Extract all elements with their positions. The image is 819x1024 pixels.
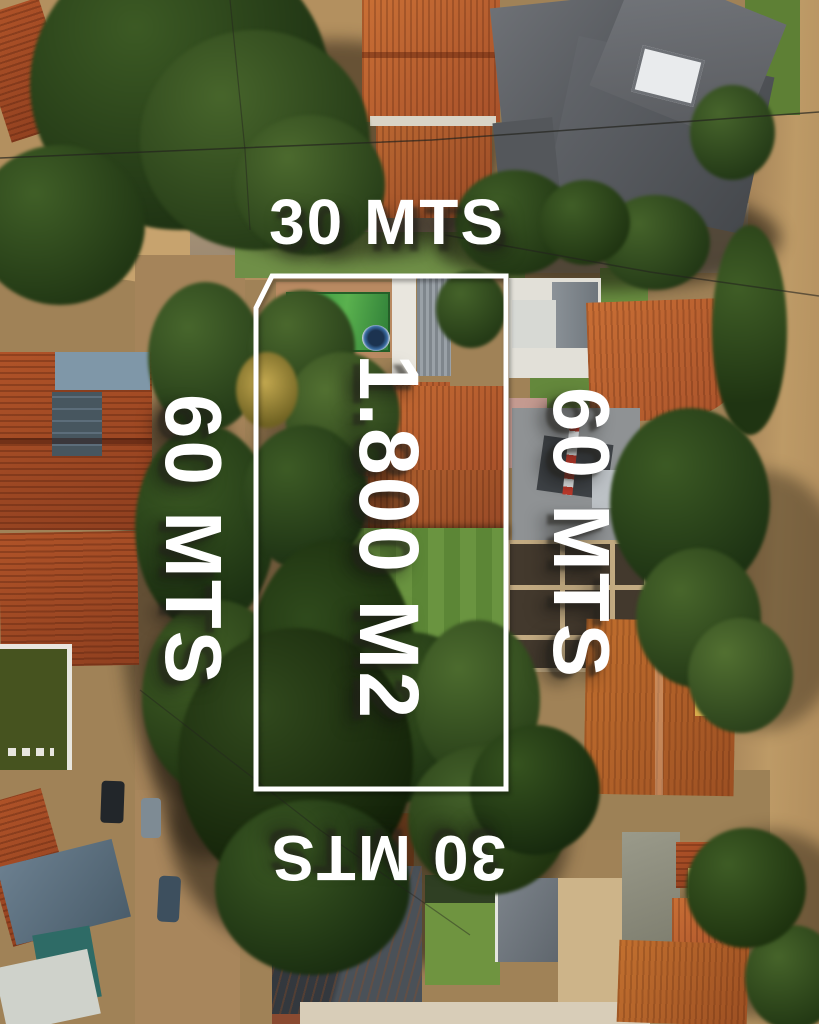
- dimension-label-right: 60 MTS: [541, 387, 621, 679]
- dimension-label-bottom: 30 MTS: [270, 826, 506, 890]
- area-label-center: 1.800 M2: [347, 354, 431, 720]
- dimension-label-left: 60 MTS: [153, 394, 233, 686]
- dimension-label-top: 30 MTS: [269, 190, 505, 254]
- aerial-photo: 30 MTS 60 MTS 1.800 M2 60 MTS 30 MTS: [0, 0, 819, 1024]
